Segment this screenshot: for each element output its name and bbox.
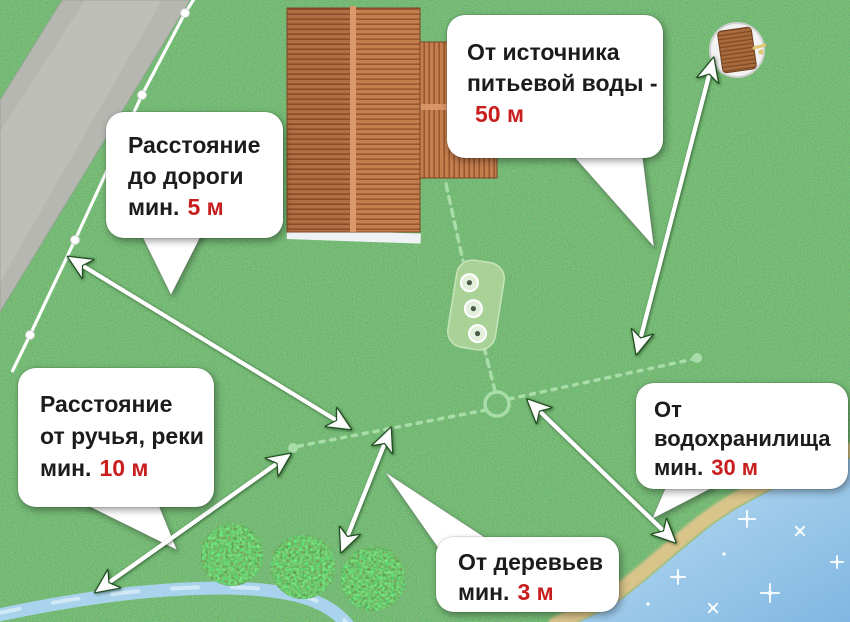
callout-road-distance: Расстояние до дороги мин.5 м [106, 112, 283, 238]
callout-text: От деревьев [458, 547, 619, 577]
callout-text: мин. [458, 579, 509, 605]
pipe-end-dot [692, 353, 702, 363]
distance-value: 10 м [99, 455, 148, 481]
pipe-end-dot [288, 443, 298, 453]
callout-text: мин. [40, 455, 91, 481]
distance-value: 3 м [517, 579, 553, 605]
callout-text: Расстояние [40, 388, 214, 420]
site-plan-diagram: От источника питьевой воды - 50 м Рассто… [0, 0, 850, 622]
distance-value: 50 м [475, 101, 524, 127]
scene-graphics [0, 0, 850, 622]
well-icon [710, 23, 765, 77]
callout-text: от ручья, реки [40, 420, 214, 452]
callout-text: Расстояние [128, 130, 283, 161]
callout-stream-distance: Расстояние от ручья, реки мин.10 м [18, 368, 214, 507]
callout-text: мин. [128, 194, 179, 220]
callout-text: до дороги [128, 161, 283, 192]
distance-value: 5 м [187, 194, 223, 220]
callout-text: От источника [467, 37, 663, 68]
callout-text: питьевой воды - [467, 68, 663, 99]
callout-trees-distance: От деревьев мин.3 м [436, 537, 619, 612]
callout-text: водохранилища [654, 424, 848, 453]
callout-reservoir-distance: От водохранилища мин.30 м [636, 383, 848, 489]
callout-text: мин. [654, 455, 703, 480]
distance-value: 30 м [711, 455, 758, 480]
callout-text: От [654, 395, 848, 424]
callout-drinking-water-source: От источника питьевой воды - 50 м [447, 15, 663, 158]
